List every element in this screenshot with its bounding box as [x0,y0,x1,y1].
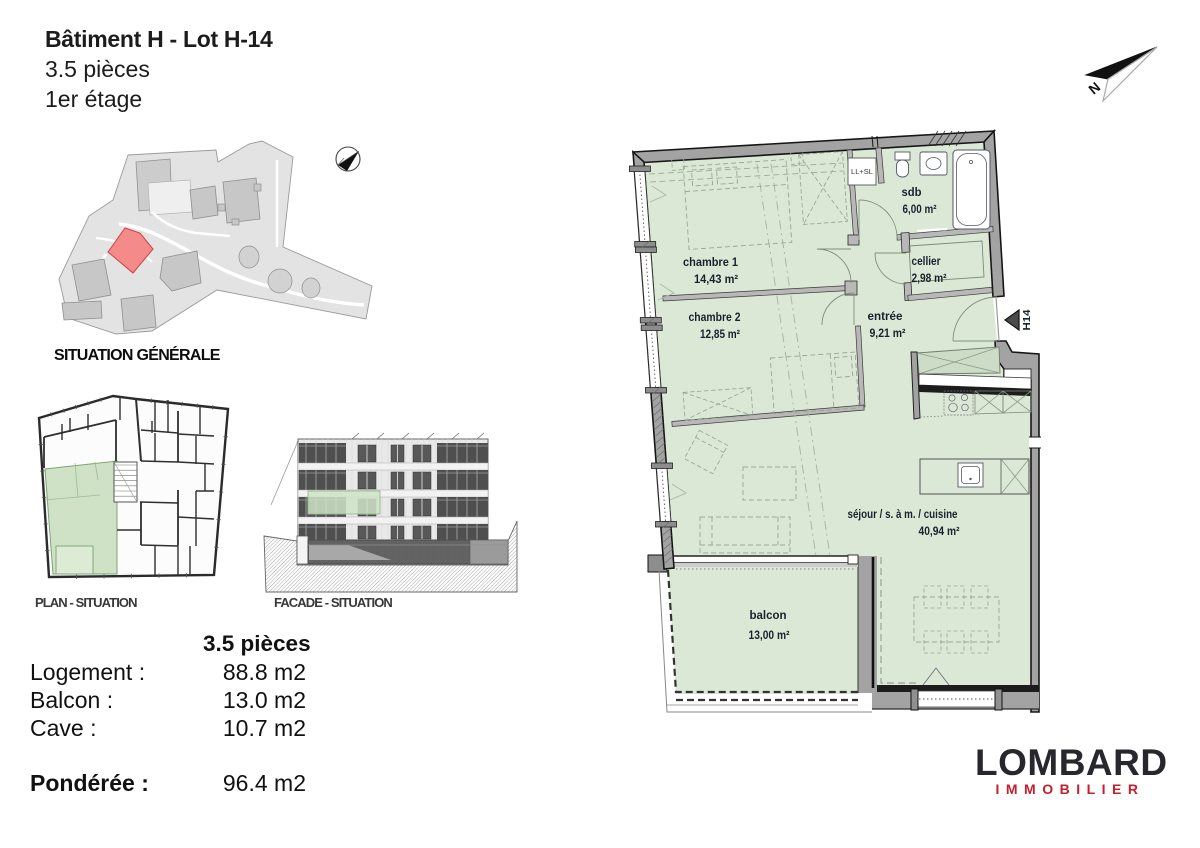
svg-text:14,43 m²: 14,43 m² [694,272,738,286]
svg-text:12,85 m²: 12,85 m² [700,327,740,341]
svg-text:9,21 m²: 9,21 m² [870,326,906,340]
svg-text:LL+SL: LL+SL [851,169,873,176]
svg-text:13,00 m²: 13,00 m² [749,628,790,642]
svg-text:chambre 1: chambre 1 [683,255,738,269]
svg-text:balcon: balcon [750,608,787,622]
svg-text:N: N [1085,79,1103,98]
svg-text:cellier: cellier [912,254,941,268]
svg-text:séjour / s. à m. / cuisine: séjour / s. à m. / cuisine [848,507,958,521]
svg-text:H14: H14 [1021,309,1033,330]
svg-text:sdb: sdb [902,185,922,199]
svg-text:entrée: entrée [868,309,903,323]
svg-text:2,98 m²: 2,98 m² [912,271,947,285]
svg-text:40,94 m²: 40,94 m² [919,524,960,538]
svg-text:chambre 2: chambre 2 [689,310,741,324]
svg-text:6,00 m²: 6,00 m² [903,202,937,216]
